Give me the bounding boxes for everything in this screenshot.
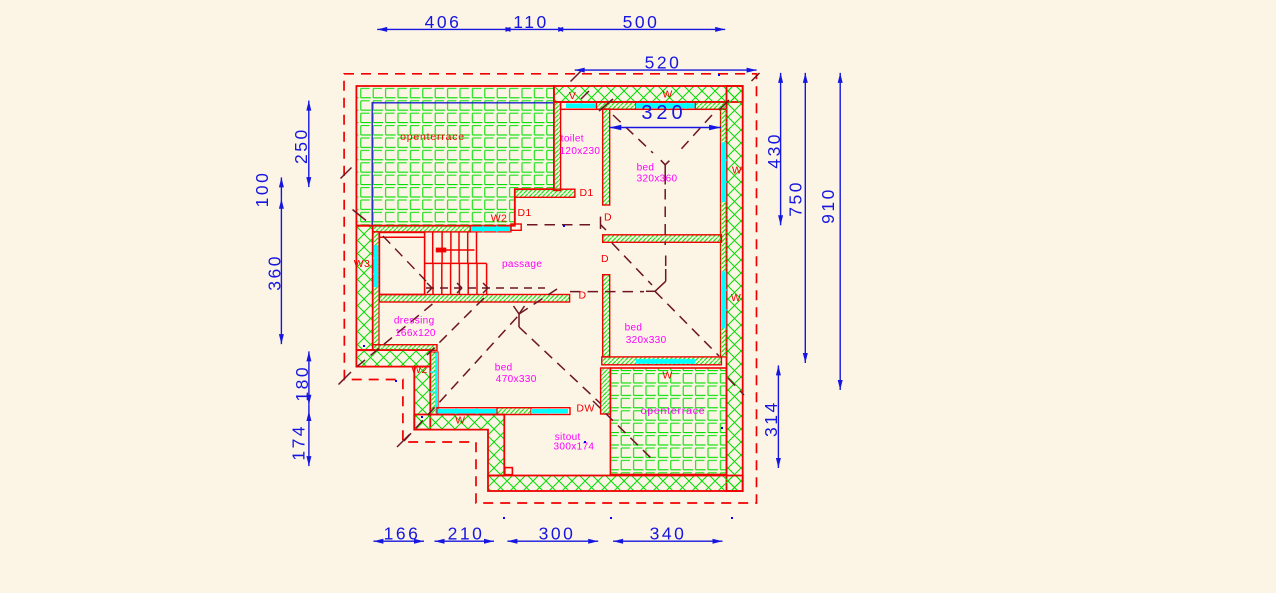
svg-text:bed: bed xyxy=(625,322,643,333)
svg-text:300: 300 xyxy=(539,524,576,544)
svg-text:520: 520 xyxy=(645,53,682,73)
svg-text:W2: W2 xyxy=(491,212,507,224)
svg-text:320: 320 xyxy=(641,102,686,124)
svg-text:dressing: dressing xyxy=(394,316,435,327)
svg-text:W3: W3 xyxy=(354,258,370,270)
svg-text:toilet: toilet xyxy=(561,134,584,145)
svg-text:910: 910 xyxy=(818,187,838,224)
svg-text:180: 180 xyxy=(292,365,312,402)
svg-text:320x330: 320x330 xyxy=(626,335,667,346)
svg-text:166x120: 166x120 xyxy=(395,328,436,339)
svg-text:openterrace: openterrace xyxy=(641,405,706,417)
svg-text:D: D xyxy=(604,212,612,224)
svg-text:W: W xyxy=(662,88,672,100)
svg-text:750: 750 xyxy=(786,180,806,217)
svg-text:500: 500 xyxy=(623,12,660,32)
svg-text:openterrace: openterrace xyxy=(400,131,465,143)
svg-text:V: V xyxy=(569,90,576,102)
svg-text:360: 360 xyxy=(264,254,284,291)
svg-text:bed: bed xyxy=(495,362,513,373)
svg-text:W: W xyxy=(662,369,672,381)
svg-text:W2: W2 xyxy=(411,364,427,376)
svg-text:430: 430 xyxy=(764,132,784,169)
svg-text:W: W xyxy=(731,292,741,304)
svg-text:D: D xyxy=(579,290,587,302)
svg-text:passage: passage xyxy=(502,259,542,270)
svg-text:DW: DW xyxy=(576,402,594,414)
svg-text:110: 110 xyxy=(513,12,548,32)
svg-text:314: 314 xyxy=(761,400,781,437)
svg-text:bed: bed xyxy=(637,162,655,173)
svg-text:W: W xyxy=(455,415,465,427)
svg-text:210: 210 xyxy=(448,524,485,544)
svg-text:D1: D1 xyxy=(579,187,593,199)
svg-text:300x174: 300x174 xyxy=(554,442,595,453)
svg-text:120x230: 120x230 xyxy=(560,146,601,157)
svg-text:470x330: 470x330 xyxy=(496,374,537,385)
svg-text:100: 100 xyxy=(252,171,272,208)
svg-text:340: 340 xyxy=(650,524,687,544)
svg-text:250: 250 xyxy=(291,127,311,164)
svg-text:174: 174 xyxy=(289,424,309,461)
svg-text:W: W xyxy=(732,164,742,176)
svg-text:406: 406 xyxy=(425,12,462,32)
svg-text:320x360: 320x360 xyxy=(637,174,678,185)
svg-text:D1: D1 xyxy=(517,207,531,219)
svg-text:D: D xyxy=(601,253,609,265)
svg-text:166: 166 xyxy=(384,524,421,544)
